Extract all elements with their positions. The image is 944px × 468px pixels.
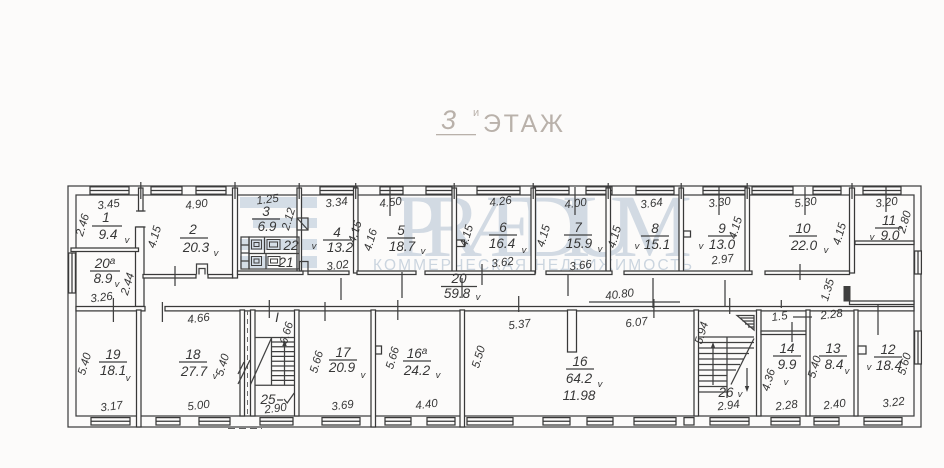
svg-text:2: 2 bbox=[188, 222, 197, 237]
svg-text:v: v bbox=[598, 379, 604, 390]
svg-text:11: 11 bbox=[882, 213, 896, 228]
svg-text:9.9: 9.9 bbox=[778, 357, 797, 372]
svg-text:10: 10 bbox=[795, 221, 811, 236]
svg-text:18.4: 18.4 bbox=[876, 358, 902, 373]
svg-text:3.20: 3.20 bbox=[875, 196, 899, 211]
svg-text:5.40: 5.40 bbox=[76, 351, 94, 376]
svg-text:4.40: 4.40 bbox=[415, 398, 439, 413]
svg-text:4.15: 4.15 bbox=[146, 224, 164, 249]
svg-text:64.2: 64.2 bbox=[566, 371, 593, 386]
svg-text:2.44: 2.44 bbox=[119, 272, 137, 298]
svg-text:v: v bbox=[476, 292, 482, 303]
svg-text:20.3: 20.3 bbox=[182, 240, 210, 255]
svg-text:3.26: 3.26 bbox=[90, 291, 114, 306]
svg-text:и: и bbox=[473, 107, 479, 119]
svg-text:4: 4 bbox=[333, 225, 341, 240]
svg-text:8.4: 8.4 bbox=[825, 357, 844, 372]
svg-text:ЭТАЖ: ЭТАЖ bbox=[483, 110, 563, 138]
svg-text:59.8: 59.8 bbox=[444, 286, 471, 301]
svg-text:5.66: 5.66 bbox=[384, 345, 402, 370]
svg-text:v: v bbox=[436, 370, 442, 381]
svg-text:7: 7 bbox=[574, 220, 582, 235]
svg-text:16: 16 bbox=[572, 354, 588, 369]
svg-text:9.0: 9.0 bbox=[881, 228, 900, 243]
svg-text:3.17: 3.17 bbox=[100, 400, 124, 415]
svg-text:13: 13 bbox=[825, 341, 841, 356]
svg-text:3: 3 bbox=[441, 105, 456, 135]
svg-text:1: 1 bbox=[102, 210, 110, 225]
svg-text:5.37: 5.37 bbox=[508, 318, 532, 333]
svg-text:9: 9 bbox=[718, 221, 726, 236]
svg-text:2.94: 2.94 bbox=[716, 399, 741, 414]
svg-text:15.1: 15.1 bbox=[644, 237, 670, 252]
svg-text:3.22: 3.22 bbox=[882, 396, 906, 411]
svg-text:6: 6 bbox=[499, 220, 507, 235]
svg-text:2.40: 2.40 bbox=[822, 398, 847, 413]
svg-text:22.0: 22.0 bbox=[790, 238, 818, 253]
svg-text:2.90: 2.90 bbox=[263, 402, 288, 417]
svg-text:v: v bbox=[361, 370, 367, 381]
svg-text:5.66: 5.66 bbox=[308, 349, 326, 374]
svg-text:5.30: 5.30 bbox=[794, 196, 818, 211]
svg-text:I: I bbox=[275, 310, 279, 325]
svg-text:16.4: 16.4 bbox=[489, 236, 515, 251]
svg-text:4.16: 4.16 bbox=[362, 227, 380, 252]
svg-text:8.9: 8.9 bbox=[94, 271, 113, 286]
svg-text:16a: 16a bbox=[407, 346, 428, 361]
svg-text:4.66: 4.66 bbox=[187, 312, 211, 327]
svg-text:24.2: 24.2 bbox=[403, 363, 431, 378]
svg-text:v: v bbox=[699, 241, 705, 252]
svg-text:2.28: 2.28 bbox=[774, 399, 799, 414]
svg-text:20.9: 20.9 bbox=[328, 360, 356, 375]
svg-text:4.15: 4.15 bbox=[347, 219, 365, 244]
svg-text:4.90: 4.90 bbox=[185, 198, 209, 213]
svg-text:6.9: 6.9 bbox=[258, 219, 277, 234]
svg-text:17: 17 bbox=[335, 345, 351, 360]
svg-text:5.50: 5.50 bbox=[470, 344, 488, 369]
svg-text:v: v bbox=[824, 245, 830, 256]
svg-text:5.00: 5.00 bbox=[187, 399, 211, 414]
svg-text:v: v bbox=[126, 373, 132, 384]
svg-text:18.1: 18.1 bbox=[100, 363, 126, 378]
svg-text:8: 8 bbox=[651, 221, 659, 236]
svg-text:v: v bbox=[214, 248, 220, 259]
svg-text:27.7: 27.7 bbox=[180, 364, 208, 379]
svg-text:9.4: 9.4 bbox=[99, 227, 118, 242]
svg-text:1.5: 1.5 bbox=[771, 310, 789, 324]
svg-text:20a: 20a bbox=[94, 256, 116, 271]
svg-text:11.98: 11.98 bbox=[563, 388, 596, 403]
svg-text:2.28: 2.28 bbox=[819, 308, 844, 323]
svg-text:15.9: 15.9 bbox=[566, 236, 593, 251]
svg-text:21: 21 bbox=[277, 255, 293, 270]
svg-text:20: 20 bbox=[450, 271, 467, 286]
svg-text:40.80: 40.80 bbox=[605, 287, 636, 302]
svg-text:5: 5 bbox=[397, 223, 405, 238]
svg-text:18.7: 18.7 bbox=[389, 239, 416, 254]
svg-text:v: v bbox=[125, 235, 131, 246]
svg-text:4.15: 4.15 bbox=[831, 221, 849, 246]
svg-text:v: v bbox=[867, 362, 873, 373]
svg-text:3.69: 3.69 bbox=[331, 399, 355, 414]
svg-text:2.97: 2.97 bbox=[710, 253, 735, 268]
svg-text:6.07: 6.07 bbox=[625, 316, 649, 331]
svg-text:5.40: 5.40 bbox=[214, 352, 232, 377]
svg-text:v: v bbox=[845, 366, 851, 377]
svg-text:3.30: 3.30 bbox=[708, 196, 732, 211]
svg-text:22: 22 bbox=[282, 238, 299, 253]
svg-text:19: 19 bbox=[105, 347, 121, 362]
svg-text:13.0: 13.0 bbox=[709, 237, 736, 252]
svg-text:26: 26 bbox=[717, 385, 734, 400]
svg-text:1.35: 1.35 bbox=[819, 277, 837, 302]
svg-text:3.34: 3.34 bbox=[325, 196, 349, 211]
svg-text:v: v bbox=[784, 377, 790, 388]
svg-text:18: 18 bbox=[185, 347, 201, 362]
svg-text:12: 12 bbox=[880, 342, 896, 357]
svg-text:4.36: 4.36 bbox=[760, 367, 778, 392]
svg-text:14: 14 bbox=[779, 341, 794, 356]
svg-text:3: 3 bbox=[262, 204, 270, 219]
